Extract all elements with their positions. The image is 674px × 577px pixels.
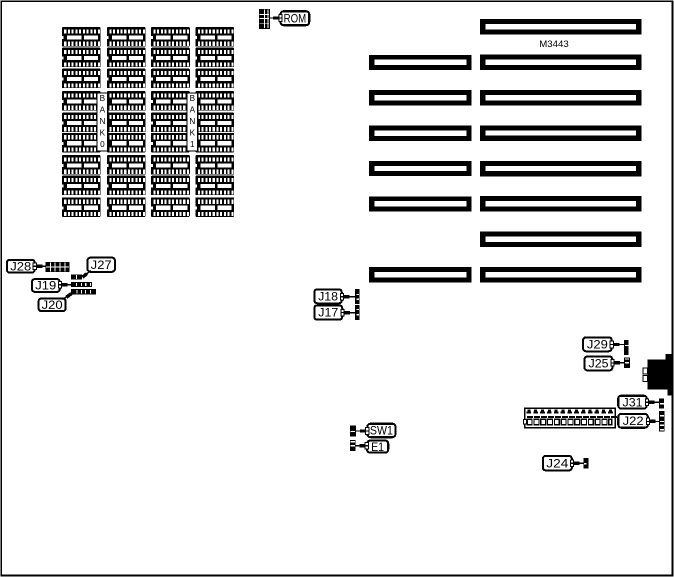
- svg-text:J29: J29: [587, 338, 608, 352]
- svg-text:J28: J28: [10, 259, 31, 273]
- svg-text:J31: J31: [623, 395, 643, 409]
- svg-text:ROM: ROM: [284, 11, 307, 25]
- svg-text:A: A: [100, 106, 106, 115]
- svg-text:B: B: [100, 94, 106, 103]
- svg-text:K: K: [100, 128, 106, 137]
- svg-text:B: B: [190, 94, 196, 103]
- svg-text:N: N: [189, 117, 195, 126]
- svg-text:SW1: SW1: [370, 424, 393, 438]
- svg-text:1: 1: [190, 140, 195, 149]
- svg-text:J24: J24: [546, 456, 568, 470]
- svg-text:E1: E1: [371, 440, 384, 454]
- svg-text:M3443: M3443: [539, 39, 569, 49]
- svg-text:A: A: [190, 106, 196, 115]
- svg-text:J18: J18: [318, 290, 338, 304]
- svg-text:J20: J20: [42, 298, 63, 312]
- svg-text:J22: J22: [623, 414, 644, 428]
- svg-text:J19: J19: [35, 279, 56, 293]
- svg-text:N: N: [99, 117, 105, 126]
- svg-text:0: 0: [100, 140, 105, 149]
- svg-text:J17: J17: [318, 306, 338, 320]
- svg-text:K: K: [190, 128, 196, 137]
- svg-text:J27: J27: [91, 258, 112, 272]
- svg-text:J25: J25: [589, 357, 609, 371]
